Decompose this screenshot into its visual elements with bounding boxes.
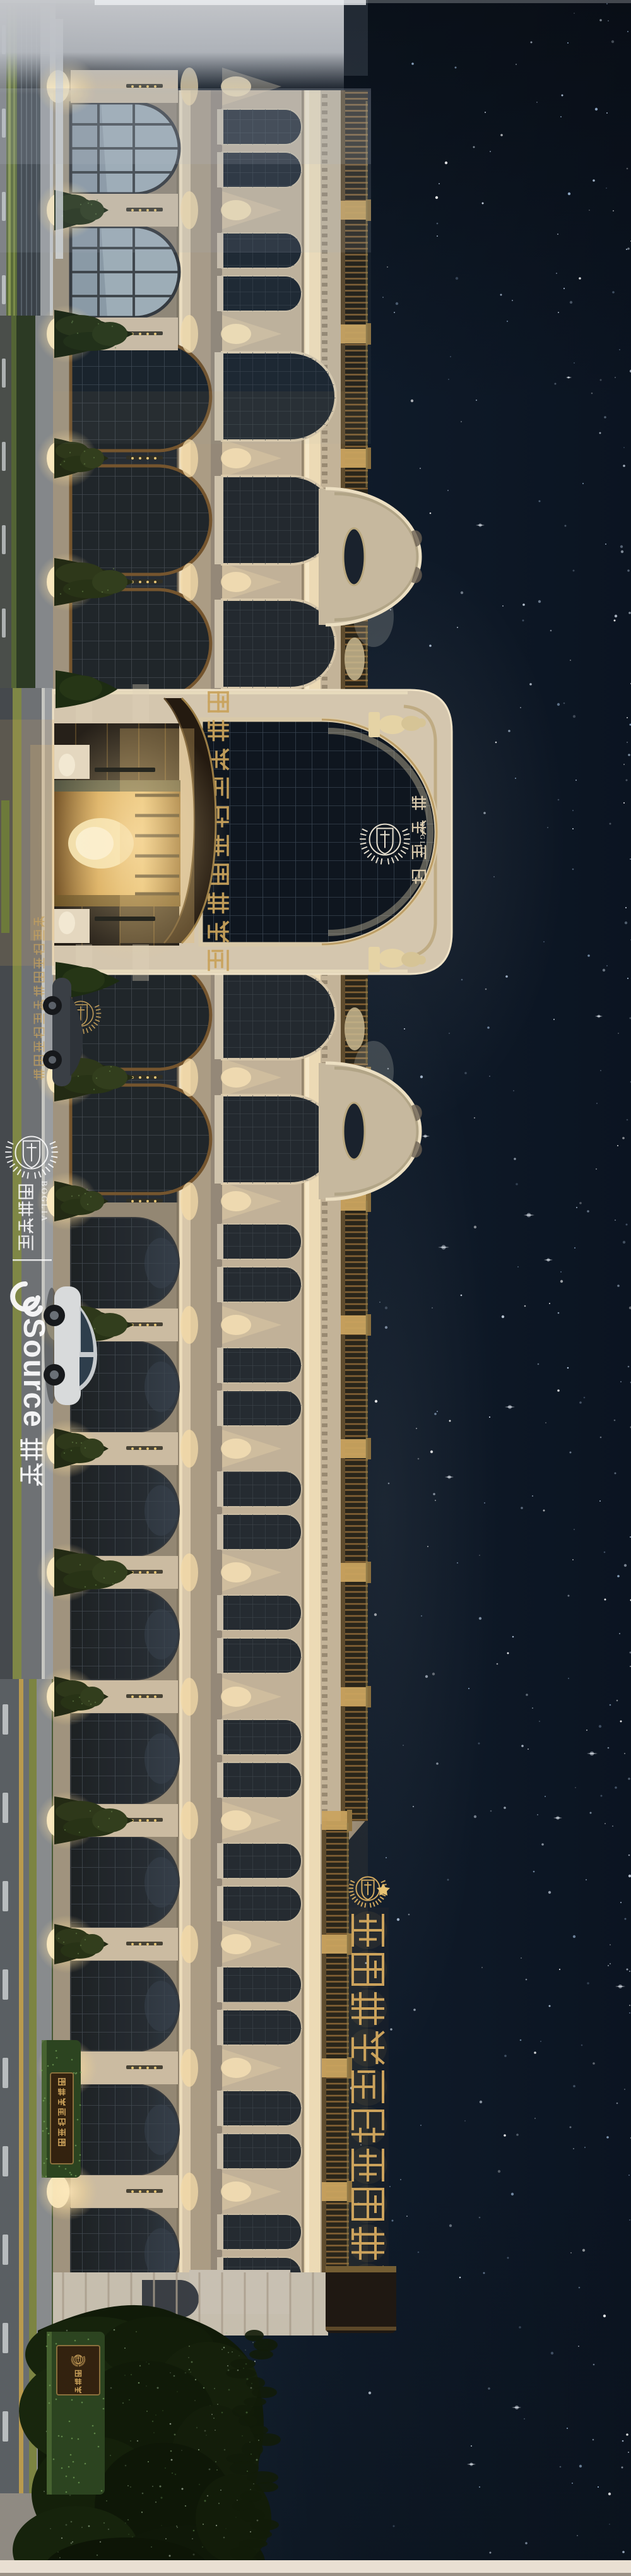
svg-text:Source: Source xyxy=(17,1318,50,1428)
svg-text:BOGLIA: BOGLIA xyxy=(40,1180,49,1223)
